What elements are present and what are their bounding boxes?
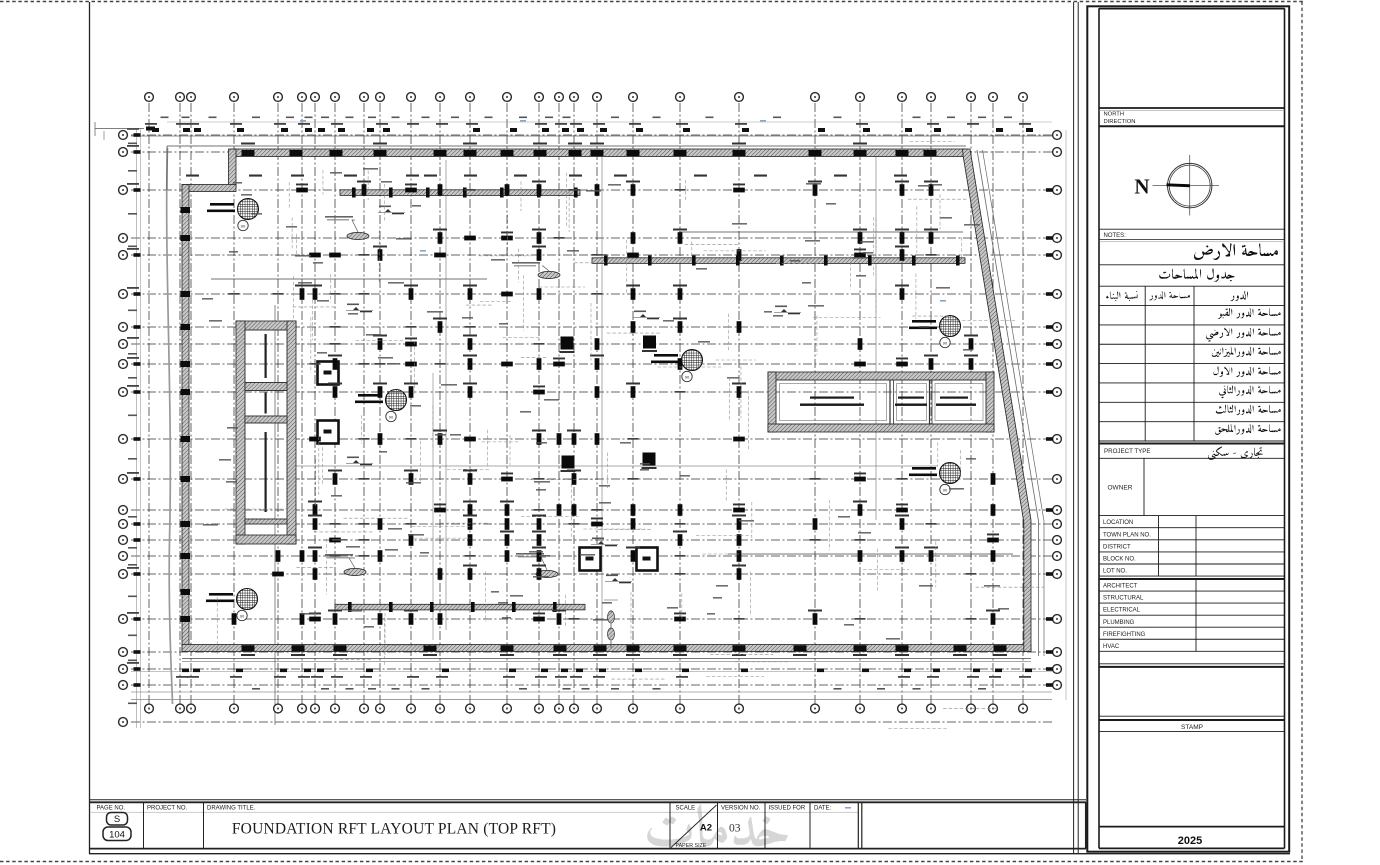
svg-text:OWNER: OWNER xyxy=(1108,485,1133,492)
svg-text:VERSION NO.: VERSION NO. xyxy=(721,806,761,812)
svg-text:STRUCTURAL: STRUCTURAL xyxy=(1103,596,1144,602)
svg-text:HVAC: HVAC xyxy=(1103,644,1120,650)
svg-text:90: 90 xyxy=(389,415,394,420)
svg-text:90: 90 xyxy=(943,341,948,346)
svg-text:ELECTRICAL: ELECTRICAL xyxy=(1103,608,1141,614)
svg-text:PAGE NO.: PAGE NO. xyxy=(97,806,126,812)
svg-text:DATE:: DATE: xyxy=(814,806,832,812)
svg-text:SCALE: SCALE xyxy=(676,806,696,812)
svg-text:STAMP: STAMP xyxy=(1181,724,1203,731)
svg-text:BLOCK NO.: BLOCK NO. xyxy=(1103,557,1136,563)
svg-text:FIREFIGHTING: FIREFIGHTING xyxy=(1103,632,1146,638)
svg-text:LOT NO.: LOT NO. xyxy=(1103,569,1127,575)
svg-text:DIRECTION: DIRECTION xyxy=(1104,119,1136,125)
svg-text:LOCATION: LOCATION xyxy=(1103,520,1133,526)
svg-text:90: 90 xyxy=(240,614,245,619)
svg-text:DISTRICT: DISTRICT xyxy=(1103,544,1131,550)
svg-text:PLUMBING: PLUMBING xyxy=(1103,620,1135,626)
svg-text:03: 03 xyxy=(729,823,741,835)
svg-text:104: 104 xyxy=(109,830,125,841)
svg-text:90: 90 xyxy=(685,375,690,380)
svg-text:NOTES:: NOTES: xyxy=(1104,233,1127,239)
svg-text:ARCHITECT: ARCHITECT xyxy=(1103,584,1138,590)
svg-text:90: 90 xyxy=(241,224,246,229)
svg-text:PAPER SIZE: PAPER SIZE xyxy=(676,843,707,849)
svg-text:S: S xyxy=(114,814,120,825)
svg-text:ISSUED FOR: ISSUED FOR xyxy=(769,806,806,812)
svg-text:2025: 2025 xyxy=(1178,835,1202,847)
svg-text:NORTH: NORTH xyxy=(1104,112,1125,118)
svg-text:90: 90 xyxy=(943,488,948,493)
svg-text:PROJECT TYPE: PROJECT TYPE xyxy=(1104,448,1151,455)
svg-text:DRAWING TITLE.: DRAWING TITLE. xyxy=(207,806,256,812)
svg-text:TOWN PLAN NO.: TOWN PLAN NO. xyxy=(1103,532,1151,538)
svg-text:A2: A2 xyxy=(700,823,712,834)
svg-text:N: N xyxy=(1134,175,1149,199)
svg-text:FOUNDATION RFT LAYOUT PLAN (TO: FOUNDATION RFT LAYOUT PLAN (TOP RFT) xyxy=(232,820,556,837)
svg-text:PROJECT NO.: PROJECT NO. xyxy=(147,806,188,812)
